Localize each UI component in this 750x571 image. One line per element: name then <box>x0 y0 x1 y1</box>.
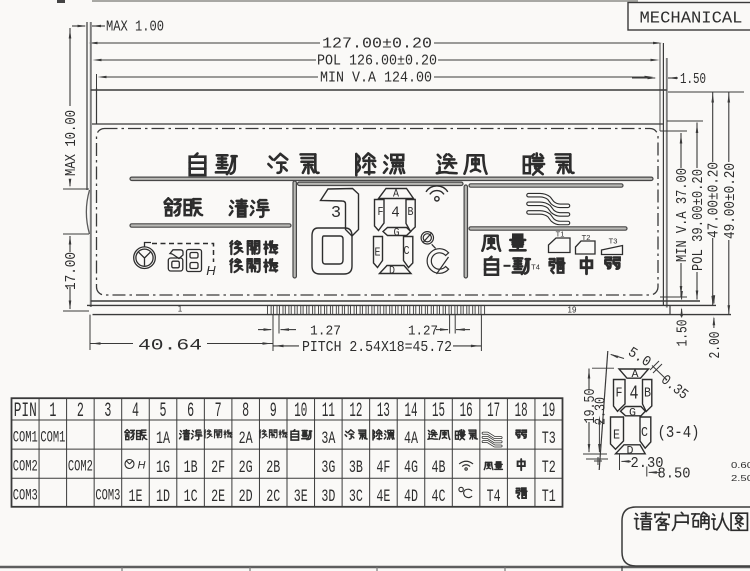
svg-text:A: A <box>632 369 639 381</box>
svg-text:18: 18 <box>515 400 528 423</box>
svg-text:3B: 3B <box>349 458 363 478</box>
svg-text:40.64: 40.64 <box>138 337 202 355</box>
svg-text:T1: T1 <box>556 230 565 239</box>
svg-text:2C: 2C <box>266 487 280 507</box>
svg-text:2.00: 2.00 <box>708 332 724 359</box>
svg-text:G: G <box>394 228 400 240</box>
svg-text:4D: 4D <box>404 487 418 507</box>
svg-text:2: 2 <box>77 400 84 423</box>
svg-text:10: 10 <box>294 400 307 423</box>
svg-text:6: 6 <box>187 400 194 423</box>
svg-text:MIN V.A 37.00: MIN V.A 37.00 <box>675 168 691 262</box>
svg-text:A: A <box>393 189 399 201</box>
svg-text:C: C <box>404 244 410 258</box>
svg-text:1: 1 <box>49 400 56 423</box>
svg-text:4F: 4F <box>376 458 390 478</box>
svg-text:4G: 4G <box>404 458 418 478</box>
svg-text:F: F <box>378 205 384 219</box>
svg-text:T1: T1 <box>542 487 556 507</box>
svg-text:7: 7 <box>215 400 222 423</box>
svg-text:COM3: COM3 <box>13 487 38 505</box>
svg-text:16: 16 <box>460 400 473 423</box>
svg-text:15: 15 <box>432 400 445 423</box>
svg-text:1G: 1G <box>156 458 170 478</box>
svg-text:1.27: 1.27 <box>310 324 341 340</box>
svg-text:1A: 1A <box>156 429 170 449</box>
svg-text:4A: 4A <box>404 429 418 449</box>
svg-text:5: 5 <box>160 400 167 423</box>
svg-text:E: E <box>375 246 381 260</box>
svg-text:17: 17 <box>487 400 500 423</box>
svg-text:G: G <box>629 407 636 419</box>
svg-text:MECHANICAL: MECHANICAL <box>640 9 743 28</box>
svg-text:2.30: 2.30 <box>593 397 609 425</box>
svg-text:MAX 10.00: MAX 10.00 <box>64 110 80 176</box>
svg-text:1D: 1D <box>156 487 170 507</box>
svg-text:4: 4 <box>391 205 400 222</box>
svg-text:3C: 3C <box>349 487 363 507</box>
svg-text:T4: T4 <box>531 263 540 272</box>
svg-text:8.50: 8.50 <box>658 467 691 483</box>
svg-text:(3-4): (3-4) <box>658 424 700 443</box>
svg-text:5.0: 5.0 <box>625 345 654 371</box>
svg-text:2A: 2A <box>239 429 253 449</box>
svg-text:1E: 1E <box>128 487 142 507</box>
svg-text:3: 3 <box>331 204 341 223</box>
svg-text:9: 9 <box>270 400 277 423</box>
svg-text:T3: T3 <box>542 429 556 449</box>
svg-text:T2: T2 <box>582 233 591 242</box>
svg-text:2D: 2D <box>239 487 253 507</box>
svg-text:3D: 3D <box>321 487 335 507</box>
svg-text:1B: 1B <box>184 458 198 478</box>
svg-text:127.00±0.20: 127.00±0.20 <box>322 37 432 53</box>
svg-text:49.00±0.20: 49.00±0.20 <box>723 163 739 239</box>
svg-text:1.50: 1.50 <box>680 72 706 88</box>
svg-text:COM2: COM2 <box>68 458 93 476</box>
svg-text:PITCH 2.54X18=45.72: PITCH 2.54X18=45.72 <box>302 340 452 356</box>
svg-text:F: F <box>616 386 623 402</box>
svg-text:0.60: 0.60 <box>731 460 750 470</box>
svg-text:19: 19 <box>542 400 555 423</box>
svg-text:T2: T2 <box>542 458 556 478</box>
svg-text:1C: 1C <box>184 487 198 507</box>
svg-text:3G: 3G <box>321 458 335 478</box>
svg-text:4: 4 <box>132 400 139 423</box>
svg-text:B: B <box>408 205 414 219</box>
svg-text:MAX 1.00: MAX 1.00 <box>106 20 164 36</box>
svg-text:2.50: 2.50 <box>731 473 750 483</box>
svg-text:13: 13 <box>377 400 390 423</box>
svg-text:47.00±0.20: 47.00±0.20 <box>707 162 723 238</box>
svg-text:14: 14 <box>404 400 417 423</box>
svg-text:POL 39.00±0.20: POL 39.00±0.20 <box>691 169 707 271</box>
svg-text:C: C <box>641 425 648 441</box>
svg-text:E: E <box>613 428 620 444</box>
svg-text:12: 12 <box>349 400 362 423</box>
svg-text:T3: T3 <box>609 237 618 246</box>
svg-text:4E: 4E <box>376 487 390 507</box>
svg-text:1.27: 1.27 <box>408 324 438 340</box>
svg-text:2F: 2F <box>211 458 225 478</box>
svg-text:17.00: 17.00 <box>64 252 80 290</box>
svg-text:3E: 3E <box>294 487 308 507</box>
svg-text:19: 19 <box>568 306 577 315</box>
svg-text:COM3: COM3 <box>95 487 120 505</box>
svg-text:COM2: COM2 <box>13 458 38 476</box>
svg-text:H: H <box>206 263 216 278</box>
svg-text:1: 1 <box>178 305 183 314</box>
svg-text:8: 8 <box>242 400 249 423</box>
svg-text:4B: 4B <box>432 458 446 478</box>
svg-text:2E: 2E <box>211 487 225 507</box>
svg-text:0.35: 0.35 <box>657 372 690 403</box>
svg-text:1.50: 1.50 <box>676 320 692 347</box>
svg-text:D: D <box>389 266 395 278</box>
svg-text:PIN: PIN <box>14 400 37 423</box>
svg-text:MIN V.A 124.00: MIN V.A 124.00 <box>320 71 432 87</box>
svg-text:4C: 4C <box>432 487 446 507</box>
svg-text:2G: 2G <box>239 458 253 478</box>
svg-text:POL 126.00±0.20: POL 126.00±0.20 <box>317 54 437 70</box>
svg-text:4: 4 <box>630 383 639 405</box>
svg-text:2B: 2B <box>266 458 280 478</box>
svg-text:11: 11 <box>322 400 335 423</box>
svg-text:B: B <box>644 386 651 402</box>
svg-text:H: H <box>137 460 145 472</box>
svg-text:COM1: COM1 <box>40 429 65 447</box>
svg-text:T4: T4 <box>487 487 501 507</box>
svg-text:3: 3 <box>104 400 111 423</box>
svg-text:3A: 3A <box>321 429 335 449</box>
svg-text:COM1: COM1 <box>13 429 38 447</box>
